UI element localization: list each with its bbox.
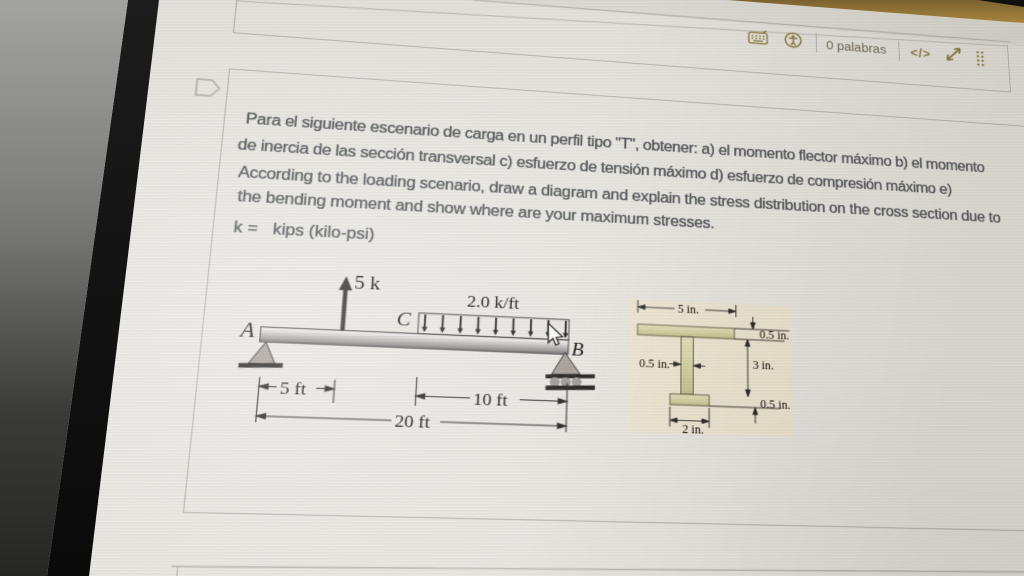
svg-text:3 in.: 3 in. — [753, 358, 774, 372]
svg-text:A: A — [237, 320, 256, 342]
svg-text:5 in.: 5 in. — [678, 303, 699, 317]
svg-text:2 in.: 2 in. — [682, 422, 704, 436]
svg-text:5 k: 5 k — [354, 273, 382, 294]
svg-text:0.5 in.: 0.5 in. — [760, 397, 790, 411]
svg-text:5 ft: 5 ft — [279, 378, 307, 399]
svg-text:C: C — [396, 310, 412, 331]
svg-text:0.5 in.: 0.5 in. — [639, 356, 670, 371]
svg-text:2.0 k/ft: 2.0 k/ft — [467, 291, 520, 312]
svg-text:20 ft: 20 ft — [394, 411, 430, 432]
svg-text:B: B — [571, 340, 584, 361]
svg-text:0.5 in.: 0.5 in. — [759, 328, 789, 342]
svg-text:10 ft: 10 ft — [473, 389, 508, 410]
